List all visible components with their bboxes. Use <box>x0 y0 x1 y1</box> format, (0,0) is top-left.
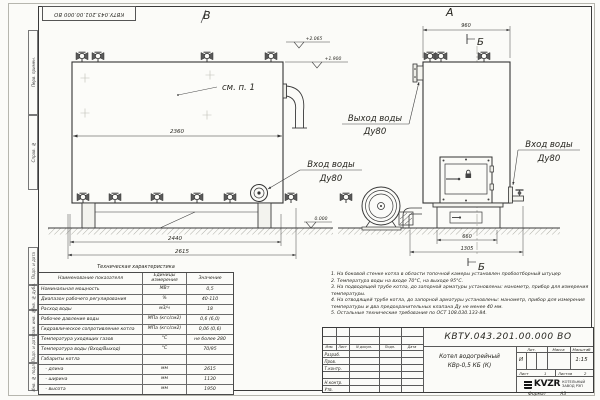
tech-table-row: - высотамм1950 <box>39 384 233 394</box>
table-cell: Габариты котла <box>39 355 143 364</box>
sign-tkontr: Т.контр. <box>325 366 342 371</box>
dim-960-text: 960 <box>461 23 471 29</box>
table-cell: МВт <box>143 285 187 294</box>
table-cell: 0,6 (6,0) <box>187 315 233 324</box>
table-cell: - высота <box>39 385 143 394</box>
format-value: А3 <box>560 392 566 397</box>
door-hinge <box>490 184 494 190</box>
scale-header: Масштаб <box>570 347 593 352</box>
drawing-sheet: КВТУ.043.201.00.000 ВО Перв. примен. Спр… <box>0 0 600 400</box>
tech-table-row: Габариты котла <box>39 354 233 364</box>
table-cell: мм <box>143 375 187 384</box>
door-hinge <box>490 166 494 172</box>
tech-table-header-row: Наименование показателя Единицы измерени… <box>39 273 233 284</box>
tech-characteristics-table: Техническая характеристика Наименование … <box>38 263 234 395</box>
side-view-base <box>82 203 271 228</box>
sign-nkontr: Н.контр. <box>325 380 343 385</box>
notes-block: 1. На боковой стенке котла в области топ… <box>331 272 591 318</box>
note-item: 2. Температура воды на входе 70°С, на вы… <box>331 279 591 285</box>
table-cell: 18 <box>187 305 233 314</box>
tech-header-units: Единицы измерения <box>143 273 187 284</box>
col-izm: Изм. <box>323 345 336 349</box>
note-item: 4. На отводящей трубе котла, до запорной… <box>331 298 591 310</box>
valve-icon <box>92 52 104 62</box>
valve-icon <box>340 193 352 203</box>
doc-number: КВТУ.043.201.00.000 ВО <box>423 328 593 346</box>
table-cell: Диапазон рабочего регулирования <box>39 295 143 304</box>
col-list: Лист <box>336 345 349 349</box>
table-cell: мм <box>143 365 187 374</box>
inlet-front-label-line2: Ду80 <box>537 154 561 164</box>
inlet-front-label-line1: Вход воды <box>525 140 573 150</box>
outlet-label-line1: Выход воды <box>348 114 402 124</box>
sheets-label: Листов <box>558 371 572 376</box>
tech-table-row: - ширинамм1130 <box>39 374 233 384</box>
view-marker-a: А <box>445 6 454 19</box>
product-name: Котел водогрейный КВр-0,5 КБ (К) <box>423 353 516 372</box>
valve-icon <box>265 52 277 62</box>
outlet-label-line2: Ду80 <box>363 127 387 137</box>
inlet-water-label-front: Вход воды Ду80 <box>513 140 580 185</box>
note-item: 1. На боковой стенке котла в области топ… <box>331 272 591 278</box>
table-cell: 1950 <box>187 385 233 394</box>
ground-line <box>48 228 560 235</box>
section-marker-b-bottom: Б <box>468 258 485 273</box>
col-dokum: N докум. <box>349 345 379 349</box>
outlet-water-label: Выход воды Ду80 <box>342 82 419 137</box>
col-data: Дата <box>401 345 423 349</box>
table-cell: Расход воды <box>39 305 143 314</box>
sheet-value: 1 <box>544 371 546 376</box>
sign-prov: Пров. <box>325 359 337 364</box>
dim-1305-text: 1305 <box>461 246 474 252</box>
valve-icon <box>76 52 88 62</box>
valve-icon <box>478 52 490 62</box>
valve-icon <box>424 52 436 62</box>
table-cell: °С <box>143 335 187 344</box>
note-item: 3. На подводящей трубе котла, до запорно… <box>331 285 591 297</box>
cut-b-top-label: Б <box>477 37 484 48</box>
tech-table-row: Диапазон рабочего регулирования%40-110 <box>39 294 233 304</box>
format-label: Формат <box>528 392 546 397</box>
title-block: Изм. Лист N докум. Подп. Дата Разраб. Пр… <box>322 327 594 393</box>
table-cell: % <box>143 295 187 304</box>
elev-mid-text: +1.900 <box>325 56 342 62</box>
table-cell: 0,5 <box>187 285 233 294</box>
outlet-flange-front <box>413 64 423 82</box>
tech-table-title: Техническая характеристика <box>38 263 234 272</box>
table-cell: 40-110 <box>187 295 233 304</box>
table-cell: не более 280 <box>187 335 233 344</box>
table-cell: Температура уходящих газов <box>39 335 143 344</box>
table-cell: Рабочее давление воды <box>39 315 143 324</box>
inlet-side-label-line1: Вход воды <box>307 160 355 170</box>
table-cell: 1130 <box>187 375 233 384</box>
sign-utv: Утв. <box>325 387 333 392</box>
table-cell: 0,06 (0,6) <box>187 325 233 334</box>
table-cell: - ширина <box>39 375 143 384</box>
tech-table-row: Номинальная мощностьМВт0,5 <box>39 284 233 294</box>
sheet-label: Лист <box>519 371 529 376</box>
table-cell: 2615 <box>187 365 233 374</box>
elev-top-text: +2.065 <box>306 36 323 42</box>
table-cell: МПа (кгс/см2) <box>143 315 187 324</box>
tech-table-row: Расход водым3/ч18 <box>39 304 233 314</box>
company-name: КОТЕЛЬНЫЙ ЗАВОД РЭП <box>562 380 585 388</box>
table-cell: м3/ч <box>143 305 187 314</box>
table-cell: Гидравлическое сопротивление котла <box>39 325 143 334</box>
table-cell: МПа (кгс/см2) <box>143 325 187 334</box>
table-cell: - длина <box>39 365 143 374</box>
kvzr-logo-icon <box>524 380 532 389</box>
table-cell: 70/95 <box>187 345 233 354</box>
table-cell: Номинальная мощность <box>39 285 143 294</box>
table-cell: °С <box>143 345 187 354</box>
blower-fan <box>340 187 422 230</box>
sheets-value: 2 <box>584 371 586 376</box>
inlet-side-label-line2: Ду80 <box>319 174 343 184</box>
table-cell: Температура воды (Вход/Выход) <box>39 345 143 354</box>
company-name-line2: ЗАВОД РЭП <box>562 384 585 388</box>
elev-zero-text: 0.000 <box>315 216 328 222</box>
valve-icon <box>201 52 213 62</box>
dim-2360-text: 2360 <box>170 129 184 135</box>
boiler-front-view <box>413 46 524 256</box>
dim-2615-text: 2615 <box>175 249 189 255</box>
tech-table-row: Температура уходящих газов°Сне более 280 <box>39 334 233 344</box>
front-view-base <box>433 203 503 228</box>
tech-header-value: Значение <box>187 273 233 284</box>
dim-2440-text: 2440 <box>168 236 182 242</box>
outlet-elbow-pipe <box>283 84 307 128</box>
inlet-valve-front <box>509 187 524 203</box>
company-logo: KVZR КОТЕЛЬНЫЙ ЗАВОД РЭП <box>516 376 593 392</box>
furnace-door <box>440 157 494 203</box>
see-note-text: см. п. 1 <box>222 83 255 93</box>
tech-header-name: Наименование показателя <box>39 273 143 284</box>
product-name-line1: Котел водогрейный <box>423 353 516 362</box>
table-cell: мм <box>143 385 187 394</box>
scale-value: 1:15 <box>570 357 593 363</box>
sign-razrab: Разраб. <box>325 352 341 357</box>
inlet-flange-side <box>251 185 268 202</box>
col-podp: Подп. <box>379 345 401 349</box>
format-note: Формат А3 <box>528 392 566 397</box>
dim-660-text: 660 <box>462 234 472 240</box>
tech-table-row: - длинамм2615 <box>39 364 233 374</box>
valve-icon <box>435 52 447 62</box>
note-item: 5. Остальные технические требования по О… <box>331 311 591 317</box>
section-marker-b-top: Б <box>467 34 484 48</box>
massa-header: Масса <box>547 347 570 352</box>
tech-table-row: Температура воды (Вход/Выход)°С70/95 <box>39 344 233 354</box>
view-marker-b: В <box>201 9 211 23</box>
tech-table-row: Гидравлическое сопротивление котлаМПа (к… <box>39 324 233 334</box>
valve-icon <box>285 193 297 203</box>
lit-value: И <box>516 357 526 363</box>
view-a-label: А <box>445 6 454 19</box>
table-cell <box>143 355 187 364</box>
tech-table-row: Рабочее давление водыМПа (кгс/см2)0,6 (6… <box>39 314 233 324</box>
kvzr-logo-text: KVZR <box>534 379 560 389</box>
table-cell <box>187 355 233 364</box>
product-name-line2: КВр-0,5 КБ (К) <box>423 362 516 371</box>
boiler-side-view: 2360 см. п. 1 <box>72 52 307 228</box>
lit-header: Лит. <box>516 347 547 352</box>
